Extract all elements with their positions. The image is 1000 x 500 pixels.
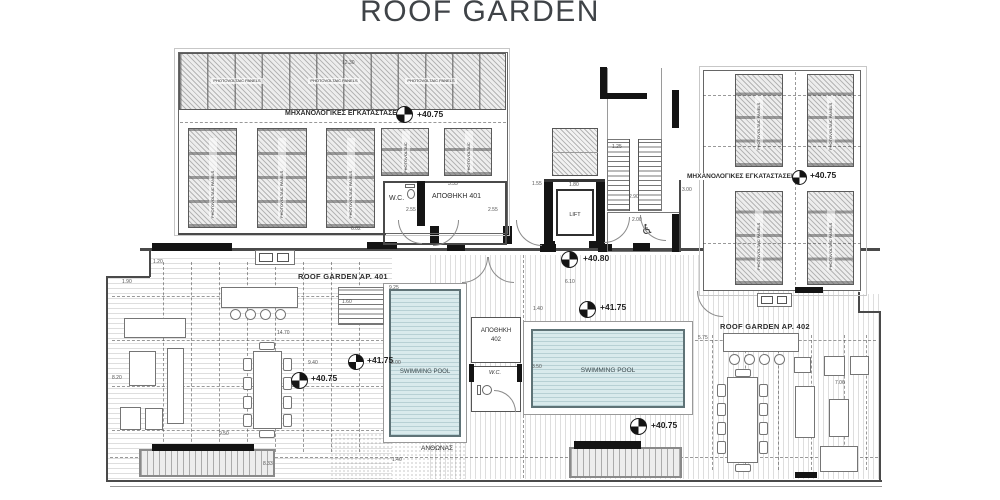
bar-counter xyxy=(221,287,298,308)
block-left-border xyxy=(178,52,508,234)
dimension: 8.00 xyxy=(391,360,401,366)
toilet-icon xyxy=(477,385,481,395)
dimension: 1.20 xyxy=(153,259,163,265)
elevation-mech-right: +40.75 xyxy=(810,170,836,180)
dimension: 1.25 xyxy=(612,144,622,150)
wall-segment xyxy=(152,243,232,251)
elevation-entry: +40.80 xyxy=(583,253,609,263)
grid-line xyxy=(703,146,861,147)
toilet-icon xyxy=(407,189,415,199)
terrace-bottom-wall xyxy=(106,480,882,482)
wall-segment xyxy=(600,93,647,99)
dimension: 3.00 xyxy=(682,187,692,193)
room-storage-401-label: ΑΠΟΘΗΚΗ 401 xyxy=(432,193,481,200)
page-title: ROOF GARDEN xyxy=(0,0,960,29)
shaft-hatch-divider xyxy=(552,152,598,153)
dimension: 6.10 xyxy=(565,279,575,285)
armchair xyxy=(850,356,869,375)
terrace-right-wall xyxy=(879,311,881,482)
elevation-pool-401: +41.75 xyxy=(367,355,393,365)
chair xyxy=(759,422,768,435)
lift-label: LIFT xyxy=(556,212,594,218)
dimension: 3.33 xyxy=(448,181,458,187)
mech-area-label-left: ΜΗΧΑΝΟΛΟΓΙΚΕΣ ΕΓΚΑΤΑΣΤΑΣΕΙΣ xyxy=(285,110,403,117)
room-wc-402-label: W.C. xyxy=(489,370,501,376)
bar-stool xyxy=(744,354,755,365)
dimension: 12.30 xyxy=(342,60,355,66)
bar-stool xyxy=(260,309,271,320)
pool-steps xyxy=(338,287,384,325)
pergola-line xyxy=(112,430,384,431)
dimension: 9.50 xyxy=(219,431,229,437)
dimension: 1.90 xyxy=(122,279,132,285)
grid-line xyxy=(703,243,861,244)
mech-area-label-right: ΜΗΧΑΝΟΛΟΓΙΚΕΣ ΕΓΚΑΤΑΣΤΑΣΕΙΣ xyxy=(686,173,798,180)
chair xyxy=(243,358,252,371)
chair xyxy=(759,441,768,454)
terrace-step-wall xyxy=(106,276,150,278)
long-planter xyxy=(139,449,275,477)
benchmark-icon xyxy=(561,251,578,268)
chair xyxy=(259,430,275,438)
chair xyxy=(283,414,292,427)
dimension: 2.90 xyxy=(629,194,639,200)
room-right-wall xyxy=(505,181,507,243)
bbq-grill-icon xyxy=(259,253,273,262)
flowerbed-label: ΑΝΘΩΝΑΣ xyxy=(421,445,453,452)
pergola-line xyxy=(331,262,332,452)
chair xyxy=(283,396,292,409)
benchmark-icon xyxy=(579,301,596,318)
dimension: 9.25 xyxy=(389,285,399,291)
pergola-line xyxy=(219,262,220,452)
stair-shaft-line xyxy=(661,68,662,139)
bar-stool xyxy=(245,309,256,320)
chair xyxy=(243,414,252,427)
dimension: 14.70 xyxy=(277,330,290,336)
benchmark-icon xyxy=(291,372,308,389)
elevation-pool-mid: +41.75 xyxy=(600,302,626,312)
benchmark-icon xyxy=(396,106,413,123)
chair xyxy=(259,342,275,350)
pergola-line xyxy=(112,340,384,341)
terrace-left-wall xyxy=(106,276,108,482)
lounge-seat xyxy=(795,386,815,438)
chair xyxy=(735,369,751,377)
long-planter xyxy=(569,447,682,478)
lounge-sofa xyxy=(820,446,858,472)
dining-table xyxy=(727,377,758,463)
dining-table xyxy=(253,351,282,429)
dimension: 2.00 xyxy=(632,217,642,223)
chair xyxy=(283,358,292,371)
bbq-sink-icon xyxy=(777,296,787,304)
pergola-line xyxy=(712,335,713,470)
bar-stool xyxy=(230,309,241,320)
toilet-icon xyxy=(405,184,415,188)
bar-stool xyxy=(275,309,286,320)
dimension: 6.02 xyxy=(351,226,361,232)
wall-segment xyxy=(672,214,679,252)
roof-garden-402-label: ROOF GARDEN AP. 402 xyxy=(720,322,810,331)
dimension: 5.75 xyxy=(698,335,708,341)
floor-plan: ROOF GARDEN PHOTOVOLTAIC PANELS xyxy=(0,0,1000,500)
wall-segment xyxy=(600,67,607,95)
core-right-wall xyxy=(679,180,681,252)
toilet-icon xyxy=(482,385,492,395)
lift-wall xyxy=(544,179,553,246)
wall-segment xyxy=(152,444,254,451)
wall-segment xyxy=(795,472,817,478)
dimension: 3.50 xyxy=(532,364,542,370)
bar-stool xyxy=(729,354,740,365)
chair xyxy=(717,384,726,397)
chair xyxy=(759,403,768,416)
chair xyxy=(759,384,768,397)
door-arc xyxy=(398,220,422,244)
side-table xyxy=(794,357,811,373)
chair xyxy=(717,422,726,435)
wall-segment xyxy=(795,287,823,293)
block-left-bottom-line xyxy=(178,233,386,235)
room-storage-402-number: 402 xyxy=(471,337,521,343)
planter-box xyxy=(120,407,141,430)
wall-segment xyxy=(574,441,641,449)
room-storage-402-label: ΑΠΟΘΗΚΗ xyxy=(471,328,521,334)
coffee-table xyxy=(829,399,849,437)
lounge-sofa xyxy=(124,318,186,338)
dimension: 8.20 xyxy=(112,375,122,381)
dimension: 1.60 xyxy=(342,299,352,305)
coffee-table xyxy=(129,351,156,386)
room-bottom-wall xyxy=(383,243,507,245)
dimension: 9.40 xyxy=(308,360,318,366)
bar-stool xyxy=(774,354,785,365)
stair-stringer xyxy=(629,139,639,211)
dimension: 1.40 xyxy=(392,457,402,463)
lift-jamb xyxy=(589,241,605,248)
bar-counter xyxy=(723,333,799,352)
room-top-wall xyxy=(383,181,507,183)
bbq-sink-icon xyxy=(277,253,289,262)
block-right-border xyxy=(703,70,861,291)
pergola-line xyxy=(303,262,304,452)
planter-box xyxy=(145,408,163,430)
armchair xyxy=(824,356,845,376)
elevation-mech-left: +40.75 xyxy=(417,109,443,119)
terrace-step-wall xyxy=(149,250,151,277)
pergola-line xyxy=(191,262,192,452)
room-wc-401-label: W.C. xyxy=(389,195,404,202)
dimension: 7.06 xyxy=(835,380,845,386)
door-arc xyxy=(516,220,542,246)
dimension: 8.33 xyxy=(263,461,273,467)
lift-jamb xyxy=(544,241,555,248)
chair xyxy=(717,441,726,454)
dimension: 1.55 xyxy=(532,181,542,187)
roof-garden-401-label: ROOF GARDEN AP. 401 xyxy=(298,272,388,281)
wall-segment xyxy=(517,364,522,382)
elevation-deck-401: +40.75 xyxy=(311,373,337,383)
pool-mid-label: SWIMMING POOL xyxy=(531,367,685,374)
elevation-deck-402: +40.75 xyxy=(651,420,677,430)
chair xyxy=(243,396,252,409)
chair xyxy=(735,464,751,472)
stair-shaft-line xyxy=(607,68,608,139)
dimension: 2.55 xyxy=(488,207,498,213)
wall-segment xyxy=(672,90,679,128)
dimension: 2.55 xyxy=(406,207,416,213)
chair xyxy=(717,403,726,416)
dimension: 1.40 xyxy=(533,306,543,312)
chair xyxy=(243,377,252,390)
grid-line xyxy=(703,95,861,96)
pool-left-label: SWIMMING POOL xyxy=(389,369,461,375)
bar-stool xyxy=(759,354,770,365)
pergola-line xyxy=(163,262,164,452)
bbq-grill-icon xyxy=(761,296,773,304)
benchmark-icon xyxy=(630,418,647,435)
terrace-bottom-offset xyxy=(110,486,882,487)
lounge-seat xyxy=(167,348,184,424)
dimension: 1.80 xyxy=(569,182,579,188)
terrace-step-wall xyxy=(858,311,880,313)
wall-segment xyxy=(469,364,474,382)
room-left-wall xyxy=(383,181,385,243)
benchmark-icon xyxy=(348,354,364,370)
benchmark-icon xyxy=(792,170,807,185)
